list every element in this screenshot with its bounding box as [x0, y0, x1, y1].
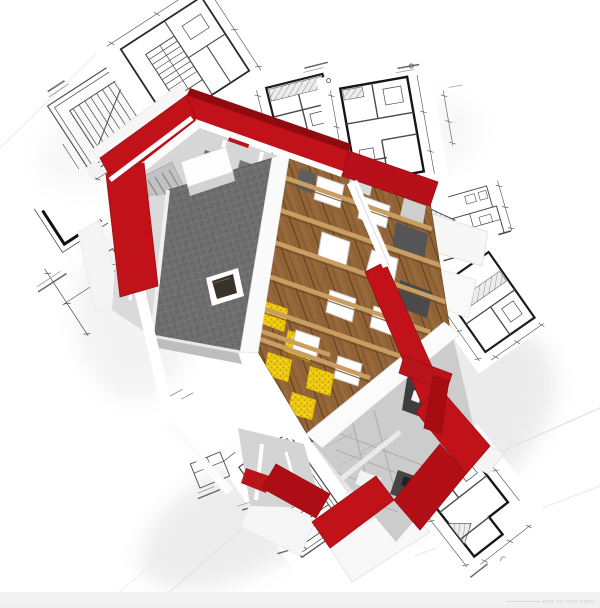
architectural-render-image: nnn nn nnn nnnn — [0, 0, 600, 608]
render-canvas — [0, 0, 600, 608]
blueprint-left-label — [35, 269, 66, 292]
watermark-line — [506, 601, 540, 602]
watermark-text: nnn nn nnn nnnn — [543, 599, 595, 605]
watermark: nnn nn nnn nnnn — [506, 597, 598, 606]
